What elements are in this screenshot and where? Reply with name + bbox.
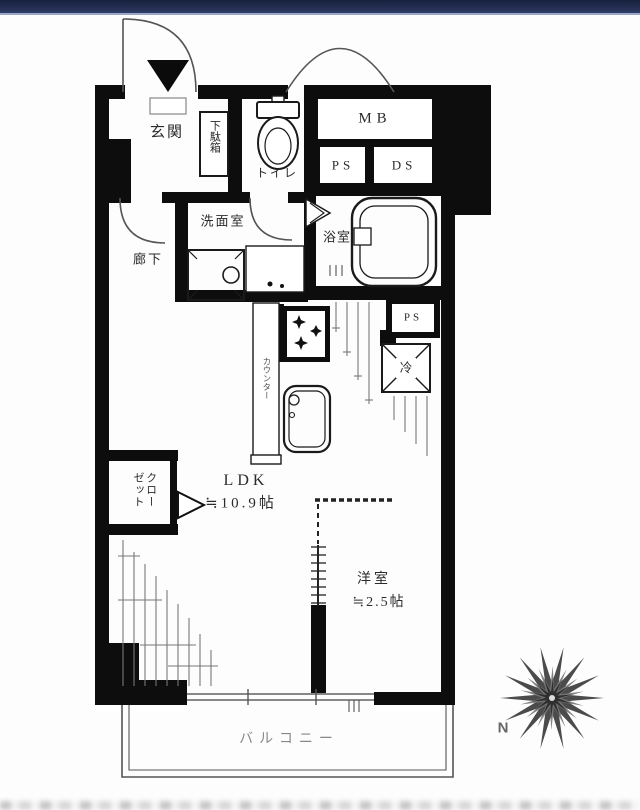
- hatch-lines-fridge: [394, 396, 427, 456]
- bathtub: [352, 198, 436, 286]
- room-label-ds: DS: [392, 159, 417, 172]
- room-label-senmenshitsu: 洗面室: [200, 215, 245, 228]
- balcony-slider-window: [187, 689, 374, 712]
- room-label-ldk: LDK: [224, 473, 269, 489]
- room-partition: [311, 500, 394, 606]
- entrance-step: [150, 98, 186, 114]
- kitchen-sink: [284, 386, 330, 452]
- room-label-genkan: 玄関: [150, 126, 184, 141]
- bath-folding-door-icon: [306, 199, 330, 227]
- washroom-door-arc: [250, 198, 292, 240]
- cropped-text-artifact: [0, 801, 640, 810]
- hatch-lines-kitchen: [332, 302, 373, 404]
- room-label-getabako: 下駄箱: [208, 120, 221, 170]
- room-label-rouka: 廊下: [133, 253, 163, 266]
- compass-north-label: N: [498, 721, 509, 736]
- room-label-yokushitsu: 浴室: [323, 231, 351, 244]
- room-label-mb: MB: [358, 112, 391, 127]
- room-size-ldk: ≒10.9帖: [205, 497, 277, 512]
- label-fridge: 冷: [400, 362, 413, 375]
- entrance-door-arc: [123, 19, 196, 92]
- floorplan-drawing: [0, 0, 640, 810]
- room-label-youshitsu: 洋室: [357, 573, 391, 587]
- closet-door-icon: [178, 492, 204, 518]
- bath-vent-ticks: [330, 265, 342, 276]
- room-label-toilet: トイレ: [256, 167, 298, 179]
- room-label-closet: クローゼット: [131, 472, 156, 512]
- toilet-fixture: [257, 96, 299, 169]
- compass-star-icon: [500, 647, 604, 748]
- floorplan-page: 玄関 下駄箱 トイレ MB PS DS 洗面室 廊下 浴室 PS カウンター 冷…: [0, 0, 640, 810]
- entrance-marker-triangle: [147, 60, 189, 92]
- room-size-youshitsu: ≒2.5帖: [352, 596, 405, 610]
- room-label-ps-kitchen: PS: [404, 313, 422, 324]
- vanity-counter: [246, 246, 304, 292]
- room-label-ps-upper: PS: [332, 159, 354, 172]
- hallway-door-arc: [120, 198, 165, 243]
- stove: [282, 306, 330, 362]
- label-kitchen-counter: カウンター: [261, 357, 271, 411]
- room-label-balcony: バルコニー: [239, 733, 339, 747]
